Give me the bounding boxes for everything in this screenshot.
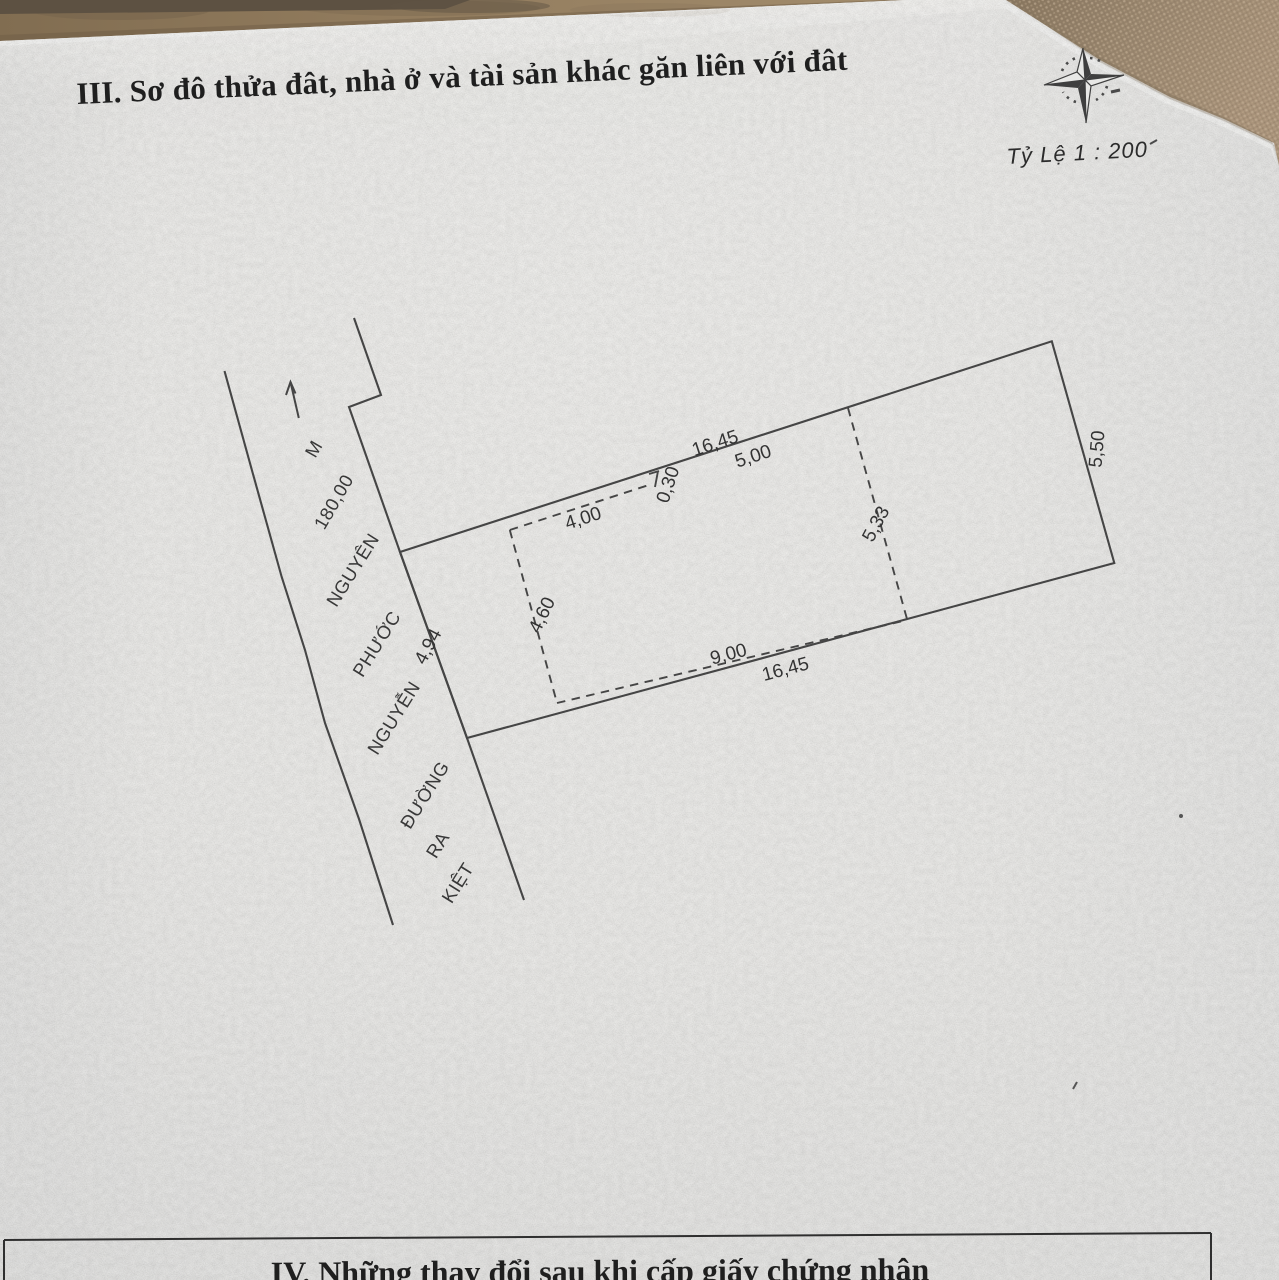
svg-text:5,50: 5,50 [1085, 430, 1109, 469]
svg-text:IV. Những thay đổi sau khi cấp: IV. Những thay đổi sau khi cấp giấy chứn… [271, 1251, 930, 1280]
